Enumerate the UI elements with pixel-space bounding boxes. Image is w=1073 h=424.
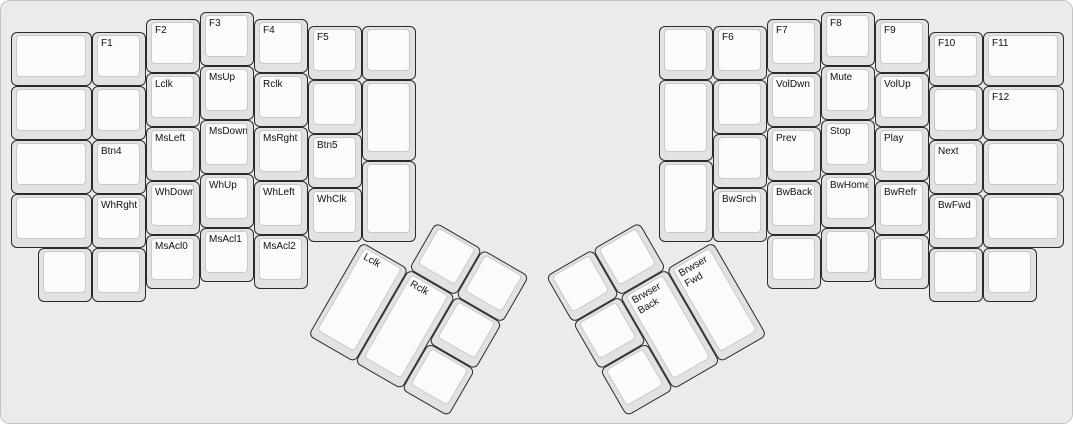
keycap-surface: MsAcl0: [151, 238, 194, 280]
key-label: WhRght: [101, 200, 139, 212]
key-blank[interactable]: [713, 134, 767, 188]
key-f8[interactable]: F8: [821, 12, 875, 66]
keycap-surface: Next: [934, 143, 977, 185]
key-blank[interactable]: [659, 80, 713, 161]
key-whdown[interactable]: WhDown: [146, 181, 200, 235]
keycap-surface: [988, 251, 1031, 293]
key-blank[interactable]: [875, 235, 929, 289]
key-bwhome[interactable]: BwHome: [821, 174, 875, 228]
key-blank[interactable]: [362, 80, 416, 161]
key-label: F2: [155, 25, 193, 37]
key-label: MsLeft: [155, 133, 193, 145]
keycap-surface: WhClk: [313, 191, 356, 233]
key-label: Lclk: [155, 79, 193, 91]
keycap-surface: WhLeft: [259, 184, 302, 226]
key-label: Brwser Fwd: [677, 250, 721, 289]
keycap-surface: Lclk: [151, 76, 194, 118]
key-label: F3: [209, 18, 247, 30]
key-blank[interactable]: [92, 86, 146, 140]
key-msacl0[interactable]: MsAcl0: [146, 235, 200, 289]
keycap-surface: [367, 164, 410, 233]
keycap-surface: VolDwn: [772, 76, 815, 118]
keycap-surface: WhUp: [205, 177, 248, 219]
key-blank[interactable]: [929, 248, 983, 302]
key-blank[interactable]: [767, 235, 821, 289]
key-msleft[interactable]: MsLeft: [146, 127, 200, 181]
keycap-surface: [16, 89, 86, 131]
keycap-surface: [772, 238, 815, 280]
key-blank[interactable]: [659, 161, 713, 242]
keycap-surface: F3: [205, 15, 248, 57]
key-lclk[interactable]: Lclk: [146, 73, 200, 127]
key-next[interactable]: Next: [929, 140, 983, 194]
keycap-surface: Btn5: [313, 137, 356, 179]
key-blank[interactable]: [92, 248, 146, 302]
key-f2[interactable]: F2: [146, 19, 200, 73]
key-label: F7: [776, 25, 814, 37]
key-mute[interactable]: Mute: [821, 66, 875, 120]
keycap-surface: [664, 29, 707, 71]
key-f5[interactable]: F5: [308, 26, 362, 80]
key-label: Btn5: [317, 140, 355, 152]
key-label: BwSrch: [722, 194, 760, 206]
key-label: [487, 258, 520, 277]
key-label: MsAcl1: [209, 234, 247, 246]
key-label: Rclk: [263, 79, 301, 91]
keycap-surface: [826, 231, 869, 273]
key-label: BwFwd: [938, 200, 976, 212]
key-blank[interactable]: [362, 161, 416, 242]
key-blank[interactable]: [983, 194, 1064, 248]
keycap-surface: F12: [988, 89, 1058, 131]
keycap-surface: [367, 29, 410, 71]
key-blank[interactable]: [38, 248, 92, 302]
keycap-surface: WhDown: [151, 184, 194, 226]
key-bwsrch[interactable]: BwSrch: [713, 188, 767, 242]
keycap-surface: [16, 143, 86, 185]
key-msacl1[interactable]: MsAcl1: [200, 228, 254, 282]
key-play[interactable]: Play: [875, 127, 929, 181]
keycap-surface: [97, 251, 140, 293]
key-btn4[interactable]: Btn4: [92, 140, 146, 194]
keycap-surface: BwRefr: [880, 184, 923, 226]
keycap-surface: [664, 164, 707, 233]
key-f10[interactable]: F10: [929, 32, 983, 86]
keycap-surface: F5: [313, 29, 356, 71]
keycap-surface: [880, 238, 923, 280]
key-rclk[interactable]: Rclk: [254, 73, 308, 127]
keycap-surface: [718, 83, 761, 125]
key-label: Prev: [776, 133, 814, 145]
key-label: F5: [317, 32, 355, 44]
keycap-surface: Play: [880, 130, 923, 172]
keycap-surface: MsUp: [205, 69, 248, 111]
keycap-surface: MsDown: [205, 123, 248, 165]
key-f3[interactable]: F3: [200, 12, 254, 66]
key-label: WhClk: [317, 194, 355, 206]
keycap-surface: [934, 251, 977, 293]
keycap-surface: Prev: [772, 130, 815, 172]
key-f9[interactable]: F9: [875, 19, 929, 73]
keycap-surface: F2: [151, 22, 194, 64]
keycap-surface: BwHome: [826, 177, 869, 219]
key-msrght[interactable]: MsRght: [254, 127, 308, 181]
key-msup[interactable]: MsUp: [200, 66, 254, 120]
keycap-surface: BwSrch: [718, 191, 761, 233]
key-label: MsDown: [209, 126, 247, 138]
key-volup[interactable]: VolUp: [875, 73, 929, 127]
keycap-surface: F10: [934, 35, 977, 77]
key-bwrefr[interactable]: BwRefr: [875, 181, 929, 235]
key-label: MsAcl2: [263, 241, 301, 253]
keycap-surface: MsAcl1: [205, 231, 248, 273]
keycap-surface: F9: [880, 22, 923, 64]
key-blank[interactable]: [983, 140, 1064, 194]
keycap-surface: MsLeft: [151, 130, 194, 172]
key-label: F1: [101, 38, 139, 50]
keycap-surface: [718, 137, 761, 179]
keycap-surface: Stop: [826, 123, 869, 165]
keycap-surface: F4: [259, 22, 302, 64]
key-label: F12: [992, 92, 1057, 104]
key-label: [556, 257, 589, 276]
key-blank[interactable]: [929, 86, 983, 140]
keycap-surface: F11: [988, 35, 1058, 77]
keycap-surface: Rclk: [259, 76, 302, 118]
keycap-surface: VolUp: [880, 76, 923, 118]
key-label: WhDown: [155, 187, 193, 199]
keycap-surface: F8: [826, 15, 869, 57]
keycap-surface: [664, 83, 707, 152]
keycap-surface: [313, 83, 356, 125]
key-label: Btn4: [101, 146, 139, 158]
key-label: Mute: [830, 72, 868, 84]
key-label: BwHome: [830, 180, 868, 192]
keyboard-layout-canvas: F1Btn4WhRghtF2LclkMsLeftWhDownF3MsUpMsDo…: [0, 0, 1073, 424]
key-label: MsAcl0: [155, 241, 193, 253]
key-msdown[interactable]: MsDown: [200, 120, 254, 174]
keycap-surface: [934, 89, 977, 131]
key-label: F4: [263, 25, 301, 37]
keycap-surface: [16, 197, 86, 239]
keycap-surface: F6: [718, 29, 761, 71]
key-blank[interactable]: [11, 32, 92, 86]
key-blank[interactable]: [308, 80, 362, 134]
keycap-surface: F7: [772, 22, 815, 64]
key-whleft[interactable]: WhLeft: [254, 181, 308, 235]
key-blank[interactable]: [11, 140, 92, 194]
key-label: Play: [884, 133, 922, 145]
key-f11[interactable]: F11: [983, 32, 1064, 86]
keycap-surface: F1: [97, 35, 140, 77]
key-btn5[interactable]: Btn5: [308, 134, 362, 188]
key-bwfwd[interactable]: BwFwd: [929, 194, 983, 248]
key-label: F6: [722, 32, 760, 44]
key-blank[interactable]: [659, 26, 713, 80]
keycap-surface: BwBack: [772, 184, 815, 226]
key-label: F9: [884, 25, 922, 37]
keycap-surface: [16, 35, 86, 77]
key-f4[interactable]: F4: [254, 19, 308, 73]
key-blank[interactable]: [362, 26, 416, 80]
key-label: F8: [830, 18, 868, 30]
key-whup[interactable]: WhUp: [200, 174, 254, 228]
key-label: Next: [938, 146, 976, 158]
key-label: WhLeft: [263, 187, 301, 199]
key-f7[interactable]: F7: [767, 19, 821, 73]
key-label: BwBack: [776, 187, 814, 199]
key-label: F10: [938, 38, 976, 50]
key-label: MsRght: [263, 133, 301, 145]
key-label: MsUp: [209, 72, 247, 84]
key-label: Lclk: [361, 251, 400, 280]
keycap-surface: WhRght: [97, 197, 140, 239]
key-label: Stop: [830, 126, 868, 138]
key-msacl2[interactable]: MsAcl2: [254, 235, 308, 289]
key-label: [603, 230, 636, 249]
key-label: WhUp: [209, 180, 247, 192]
key-whclk[interactable]: WhClk: [308, 188, 362, 242]
key-voldwn[interactable]: VolDwn: [767, 73, 821, 127]
key-label: VolUp: [884, 79, 922, 91]
keycap-surface: Mute: [826, 69, 869, 111]
keycap-surface: [988, 143, 1058, 185]
key-f1[interactable]: F1: [92, 32, 146, 86]
key-label: VolDwn: [776, 79, 814, 91]
keycap-surface: [988, 197, 1058, 239]
key-blank[interactable]: [11, 86, 92, 140]
key-label: F11: [992, 38, 1057, 50]
keycap-surface: Btn4: [97, 143, 140, 185]
key-stop[interactable]: Stop: [821, 120, 875, 174]
key-whrght[interactable]: WhRght: [92, 194, 146, 248]
keycap-surface: [97, 89, 140, 131]
keycap-surface: [43, 251, 86, 293]
key-bwback[interactable]: BwBack: [767, 181, 821, 235]
key-blank[interactable]: [713, 80, 767, 134]
keycap-surface: MsAcl2: [259, 238, 302, 280]
key-prev[interactable]: Prev: [767, 127, 821, 181]
key-f12[interactable]: F12: [983, 86, 1064, 140]
key-blank[interactable]: [983, 248, 1037, 302]
keycap-surface: [367, 83, 410, 152]
keycap-surface: BwFwd: [934, 197, 977, 239]
keycap-surface: MsRght: [259, 130, 302, 172]
key-f6[interactable]: F6: [713, 26, 767, 80]
key-label: [441, 231, 474, 250]
key-label: BwRefr: [884, 187, 922, 199]
key-blank[interactable]: [821, 228, 875, 282]
key-blank[interactable]: [11, 194, 92, 248]
